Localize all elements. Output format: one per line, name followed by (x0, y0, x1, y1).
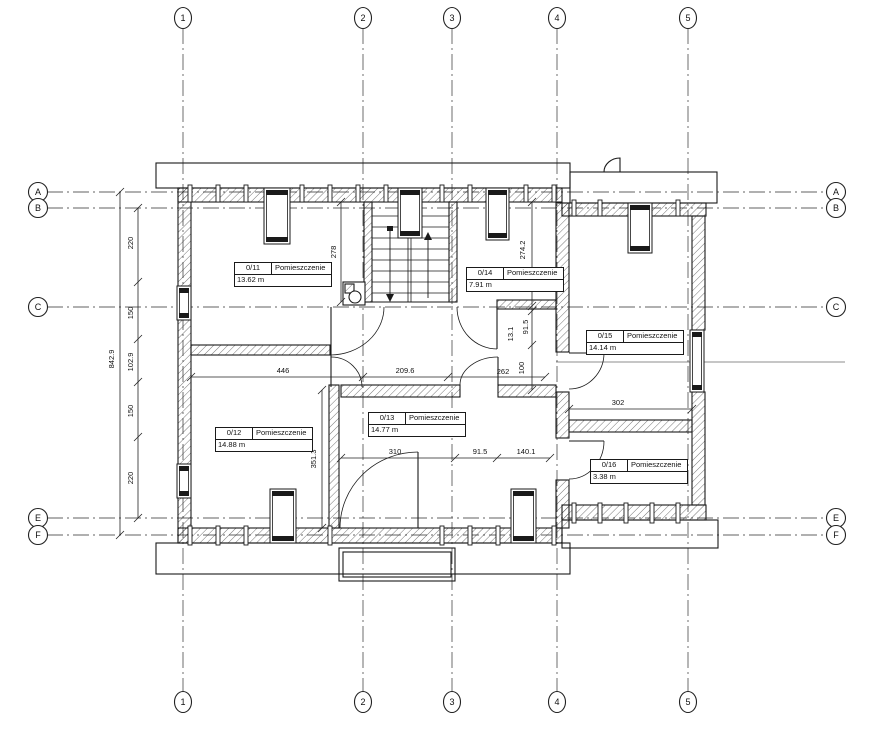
room-label-0-16: 0/16Pomieszczenie3.38 m (590, 459, 688, 484)
room-area: 3.38 m (591, 472, 687, 483)
room-label-0-11: 0/11Pomieszczenie13.62 m (234, 262, 332, 287)
floor-plan-canvas: 1122334455AABBCCEEFF (0, 0, 881, 750)
room-name: Pomieszczenie (272, 263, 331, 274)
room-name: Pomieszczenie (504, 268, 563, 279)
room-label-0-12: 0/12Pomieszczenie14.88 m (215, 427, 313, 452)
room-id: 0/12 (216, 428, 253, 439)
room-label-0-14: 0/14Pomieszczenie7.91 m (466, 267, 564, 292)
room-label-0-13: 0/13Pomieszczenie14.77 m (368, 412, 466, 437)
room-id: 0/11 (235, 263, 272, 274)
room-label-0-15: 0/15Pomieszczenie14.14 m (586, 330, 684, 355)
room-label-row1: 0/15Pomieszczenie (587, 331, 683, 343)
room-id: 0/16 (591, 460, 628, 471)
room-label-row1: 0/12Pomieszczenie (216, 428, 312, 440)
room-area: 14.14 m (587, 343, 683, 354)
room-area: 14.88 m (216, 440, 312, 451)
room-name: Pomieszczenie (406, 413, 465, 424)
room-area: 13.62 m (235, 275, 331, 286)
room-label-row1: 0/14Pomieszczenie (467, 268, 563, 280)
room-id: 0/13 (369, 413, 406, 424)
room-area: 7.91 m (467, 280, 563, 291)
room-label-row1: 0/16Pomieszczenie (591, 460, 687, 472)
room-name: Pomieszczenie (624, 331, 683, 342)
room-id: 0/14 (467, 268, 504, 279)
room-id: 0/15 (587, 331, 624, 342)
room-area: 14.77 m (369, 425, 465, 436)
room-name: Pomieszczenie (253, 428, 312, 439)
room-name: Pomieszczenie (628, 460, 687, 471)
room-label-row1: 0/11Pomieszczenie (235, 263, 331, 275)
room-labels-layer: 0/11Pomieszczenie13.62 m0/14Pomieszczeni… (0, 0, 881, 750)
room-label-row1: 0/13Pomieszczenie (369, 413, 465, 425)
